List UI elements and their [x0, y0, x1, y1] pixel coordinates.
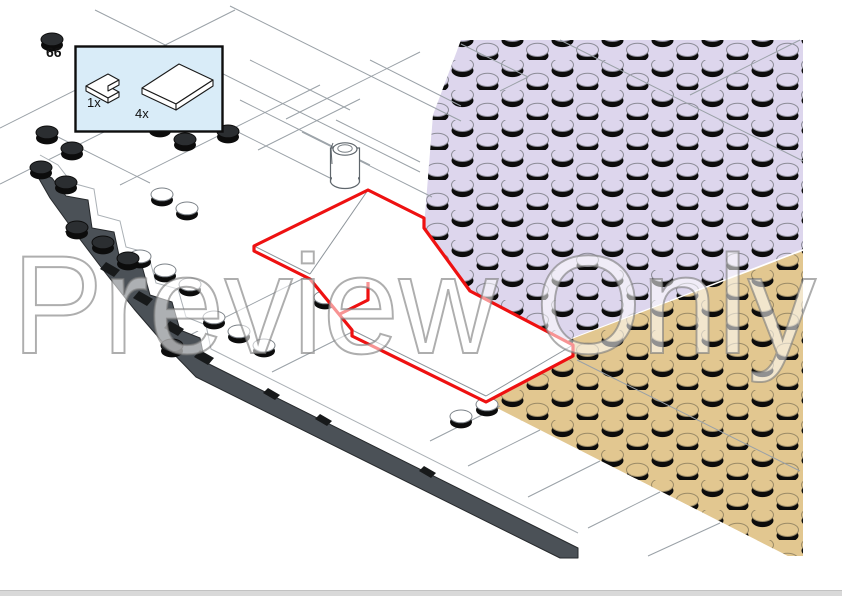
page-bottom-edge-bar	[0, 590, 842, 596]
qty-label-corner-plate: 1x	[87, 95, 101, 110]
instruction-page: Preview Only 66 1x 4x	[0, 0, 842, 596]
parts-callout-box: 1x 4x	[76, 47, 223, 132]
cylinder-piece	[331, 143, 360, 189]
step-number: 66	[46, 44, 62, 60]
watermark-text: Preview Only	[12, 226, 816, 383]
lego-render: Preview Only 66 1x 4x	[0, 0, 842, 596]
qty-label-rect-plate: 4x	[135, 106, 149, 121]
